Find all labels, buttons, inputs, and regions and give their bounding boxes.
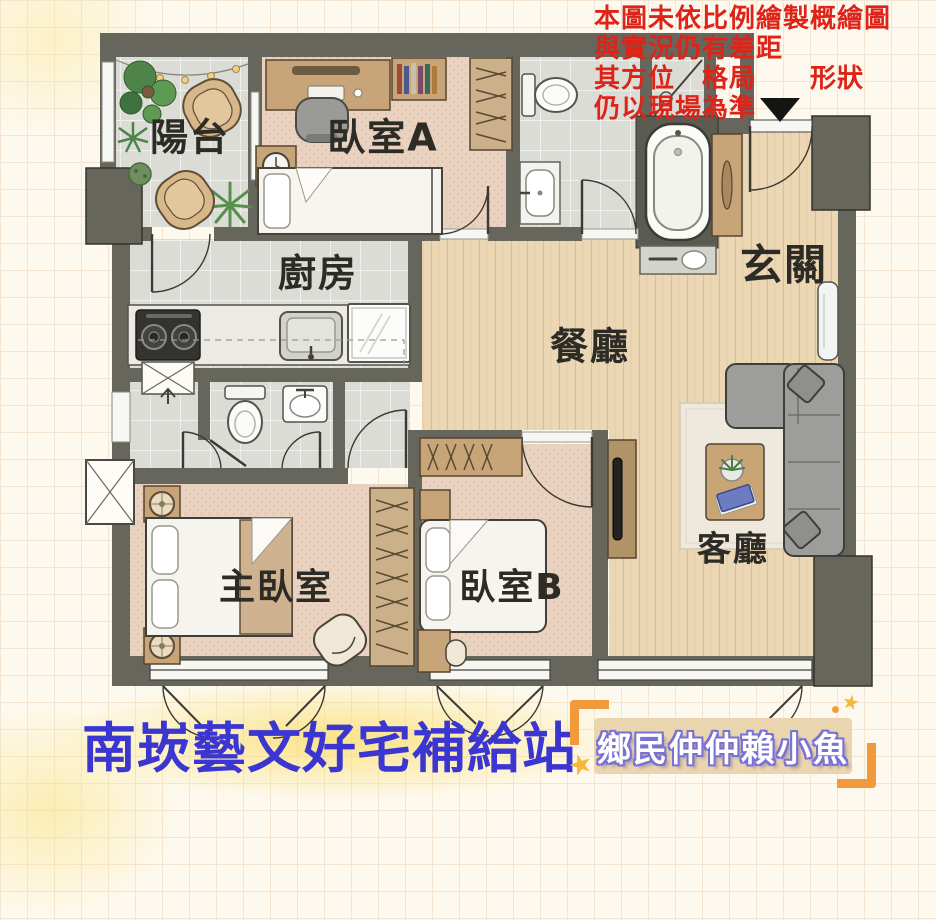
toilet <box>522 74 577 116</box>
disclaimer-line: 本圖未依比例繪製概繪圖 <box>594 4 891 34</box>
room-label-kitchen: 廚房 <box>278 243 358 298</box>
bathroom-sink <box>520 162 560 224</box>
wall-sink <box>283 386 327 422</box>
mirror <box>818 282 838 360</box>
kitchen-furniture <box>128 304 410 368</box>
room-label-entry: 玄關 <box>740 232 828 293</box>
wardrobe <box>370 488 414 666</box>
author-badge: ★ ★ 鄉民仲仲賴小魚 <box>570 696 880 792</box>
room-label-balcony: 陽台 <box>150 107 230 162</box>
disclaimer-line: 仍以現場為準 <box>594 94 756 124</box>
fridge <box>348 304 410 362</box>
bookshelf <box>392 58 446 100</box>
dot-decoration <box>832 706 839 713</box>
single-bed <box>258 168 442 234</box>
tv-cabinet <box>608 440 636 558</box>
disclaimer-text: 本圖未依比例繪製概繪圖 與實況仍有差距 其方位 格局 形狀 仍以現場為準 <box>594 4 930 124</box>
room-label-bedroom-a: 臥室A <box>327 107 438 162</box>
kitchen-sink <box>280 312 342 360</box>
room-label-living: 客廳 <box>697 522 769 571</box>
plant-pot <box>129 163 151 185</box>
coffee-table <box>706 444 764 520</box>
pipe-shaft <box>86 460 134 524</box>
toilet <box>225 386 265 443</box>
nightstand-lamp <box>144 486 180 522</box>
room-label-bedroom-b: 臥室B <box>459 558 564 610</box>
stove <box>136 310 200 360</box>
page-title: 南崁藝文好宅補給站 <box>82 704 602 783</box>
disclaimer-line: 與實況仍有差距 <box>594 34 783 64</box>
bathtub <box>646 124 710 240</box>
room-label-dining: 餐廳 <box>550 316 630 371</box>
badge-text: 鄉民仲仲賴小魚 <box>597 722 849 771</box>
side-table <box>420 490 450 520</box>
star-icon: ★ <box>840 688 863 715</box>
wardrobe <box>470 58 512 150</box>
disclaimer-line: 其方位 格局 形狀 <box>594 64 864 94</box>
dresser-books <box>420 438 522 476</box>
badge-plate: 鄉民仲仲賴小魚 <box>594 718 852 774</box>
vanity <box>640 246 716 274</box>
room-label-master-bedroom: 主臥室 <box>219 558 333 610</box>
shoe-cabinet <box>712 134 742 236</box>
